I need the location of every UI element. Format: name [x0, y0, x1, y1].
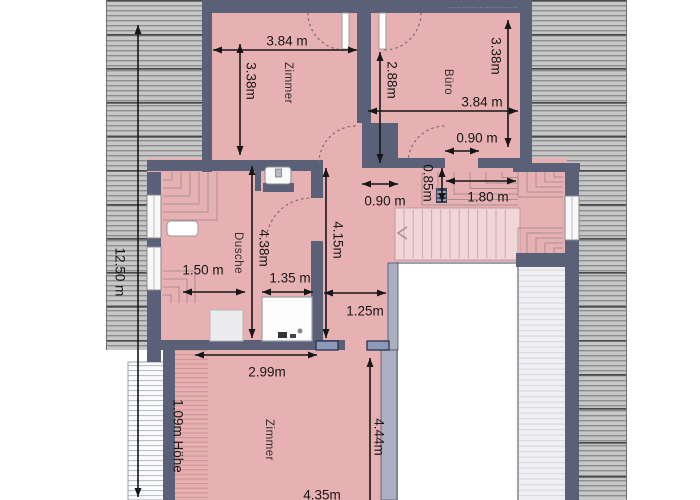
- wall-landing-bottom: [516, 253, 579, 267]
- dimension-label: 3.38m: [244, 62, 259, 100]
- wall-dusche-right-upper: [311, 160, 323, 198]
- floor-plan-svg: 3.84 m3.38m2.88m3.38m3.84 m0.90 m0.90 m0…: [0, 0, 700, 500]
- dimension-label: 1.25m: [346, 304, 384, 319]
- dimension-label: 12.50 m: [113, 248, 128, 297]
- floor-plan-page: 3.84 m3.38m2.88m3.38m3.84 m0.90 m0.90 m0…: [0, 0, 700, 500]
- dimension-label: 3.84 m: [461, 95, 502, 110]
- wall-dusche-bottom: [147, 340, 345, 350]
- skylight-window-1: [316, 341, 338, 350]
- dimension-label: 2.99m: [248, 365, 286, 380]
- radiator-icon: [167, 221, 198, 236]
- height-note-label: 1.09m Höhe: [171, 399, 186, 473]
- wall-dusche-right-lower: [311, 241, 323, 350]
- dimension-label: 0.90 m: [456, 131, 497, 146]
- stairs: [395, 208, 520, 260]
- dimension-label: 1.50 m: [182, 263, 223, 278]
- dimension-label: 0.90 m: [364, 194, 405, 209]
- dimension-label: 3.38m: [489, 37, 504, 75]
- room-label-zimmer-top: Zimmer: [282, 62, 294, 104]
- wall-corridor-void: [388, 263, 398, 350]
- dimension-label: 3.84 m: [266, 34, 307, 49]
- room-label-dusche: Dusche: [232, 232, 244, 274]
- door-leaf-buero-top: [379, 13, 386, 49]
- dimension-label: 0.85m: [421, 164, 436, 202]
- dimension-label: 4.44m: [372, 418, 387, 456]
- dimension-label: 4.38m: [257, 229, 272, 267]
- wall-sink-nook-left: [255, 163, 261, 191]
- roof-ladder-hatch: [128, 362, 164, 500]
- wall-left-top: [202, 0, 212, 172]
- stairwell-void: [397, 263, 518, 500]
- watermark-text: ·····························: [448, 5, 519, 11]
- dimension-label: 1.35 m: [269, 271, 310, 286]
- skylight-window-2: [367, 341, 389, 350]
- sink-tap-icon: [276, 169, 282, 177]
- wall-central: [357, 13, 371, 123]
- door-leaf-zimmer-top: [342, 13, 349, 49]
- wall-landing-right-upper: [565, 163, 579, 196]
- room-label-zimmer-bottom: Zimmer: [263, 419, 275, 461]
- wall-dusche-top: [147, 160, 323, 171]
- wall-right-lower: [565, 240, 579, 500]
- dimension-label: 4.15m: [331, 221, 346, 259]
- shower-tray-icon: [210, 310, 243, 341]
- dimension-label: 4.35m: [303, 488, 341, 500]
- room-label-buero: Büro: [442, 69, 454, 95]
- dimension-label: 1.80 m: [467, 190, 508, 205]
- dimension-label: 2.88m: [385, 61, 400, 99]
- roof-light-area: [518, 267, 565, 500]
- wall-right-top: [520, 0, 532, 168]
